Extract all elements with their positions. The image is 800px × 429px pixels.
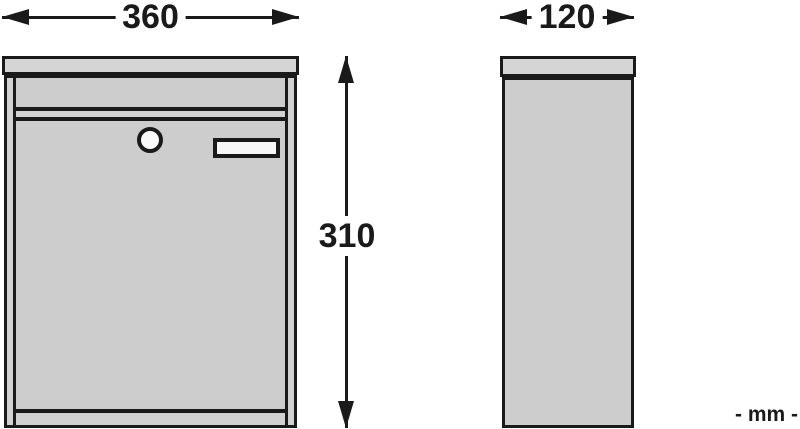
mailbox-lid — [2, 56, 299, 75]
arrow-left-icon — [500, 9, 527, 25]
arrow-up-icon — [338, 56, 354, 83]
dimension-value-front-width: 360 — [115, 0, 186, 34]
flap-bottom-line — [16, 107, 285, 111]
arrow-right-icon — [272, 9, 299, 25]
dimension-value-front-height: 310 — [313, 216, 382, 256]
dimension-front-width: 360 — [2, 1, 299, 34]
lock-icon — [137, 127, 163, 153]
mailbox-door — [16, 121, 285, 409]
name-plate — [213, 138, 280, 158]
side-view — [500, 56, 636, 428]
letter-flap — [16, 78, 285, 107]
arrow-right-icon — [607, 9, 634, 25]
front-view — [2, 56, 299, 428]
technical-drawing: 360 120 310 - — [0, 0, 800, 429]
right-rail-line — [285, 78, 288, 425]
arrow-left-icon — [2, 9, 29, 25]
dimension-value-side-depth: 120 — [532, 0, 603, 34]
mailbox-body — [4, 75, 297, 428]
mailbox-body-side — [502, 77, 634, 428]
dimension-front-height: 310 — [336, 56, 358, 428]
unit-note: - mm - — [735, 403, 798, 427]
arrow-down-icon — [338, 401, 354, 428]
dimension-side-depth: 120 — [500, 1, 634, 34]
mailbox-lid-side — [500, 56, 636, 77]
door-bottom-line — [16, 409, 285, 413]
